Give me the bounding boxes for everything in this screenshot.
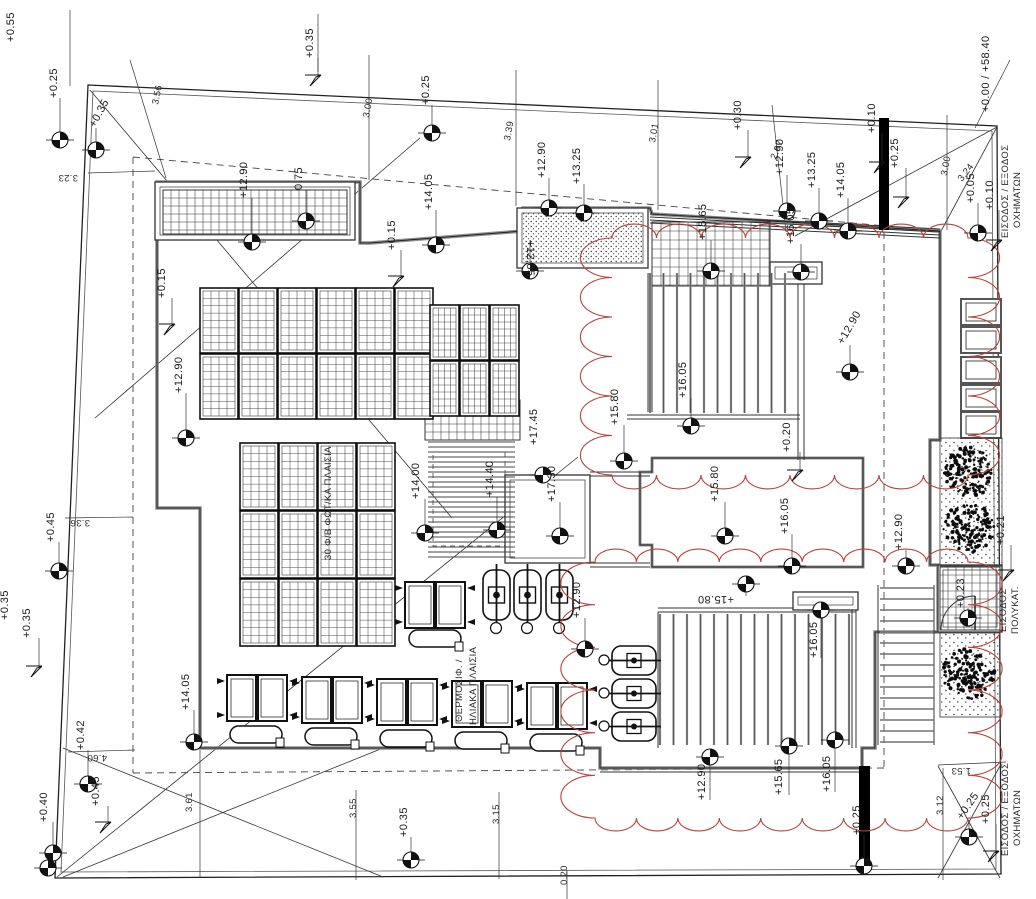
tree-foliage-dot (984, 544, 988, 548)
tree-foliage-dot (982, 462, 984, 464)
tank-fitting (426, 742, 434, 751)
elevation-label: +0.20 (781, 422, 793, 452)
elevation-label: +16.05 (785, 208, 797, 244)
tree-foliage-dot (975, 526, 978, 529)
vertical-heater (514, 564, 541, 626)
tree-foliage-dot (950, 486, 952, 488)
tree-foliage-dot (947, 518, 949, 520)
tree-foliage-dot (981, 683, 983, 685)
elevation-label: +0.10 (984, 180, 996, 210)
tree-foliage-dot (951, 530, 955, 534)
collector-divider (480, 681, 484, 727)
tree-foliage-dot (989, 472, 992, 475)
collector-pair (217, 675, 297, 721)
greek-annotation-label: ΠΟΛΥΚΑΤ. (1010, 586, 1021, 634)
tree-foliage-dot (974, 542, 976, 544)
tree-foliage-dot (947, 472, 950, 475)
tree-foliage-dot (976, 518, 979, 521)
tree-foliage-dot (980, 521, 983, 524)
tree-foliage-dot (981, 695, 983, 697)
tree-foliage-dot (989, 529, 991, 531)
pv-panel (490, 361, 519, 416)
elevation-label: +14.05 (423, 174, 435, 210)
tree-foliage-dot (986, 477, 989, 480)
tree-foliage-dot (973, 521, 975, 523)
tree-foliage-dot (953, 481, 957, 485)
tree-foliage-dot (956, 523, 959, 526)
tree-foliage-dot (960, 651, 963, 654)
tree-foliage-dot (942, 665, 946, 669)
tree-foliage-dot (953, 528, 955, 530)
tree-foliage-dot (974, 504, 977, 507)
tree-foliage-dot (973, 666, 975, 668)
tree-foliage-dot (987, 463, 990, 466)
pv-panel (240, 511, 278, 578)
tree-foliage-dot (961, 686, 963, 688)
tree-foliage-dot (947, 683, 951, 687)
elevation-label: +0.15 (156, 268, 168, 298)
heater-valve (554, 623, 565, 634)
tank-fitting (576, 746, 584, 755)
elevation-label: +13.25 (806, 152, 818, 188)
heater-valve (599, 688, 609, 698)
greek-annotation-label: ΟΧΗΜΑΤΩΝ (1012, 172, 1023, 228)
tree-foliage-dot (985, 530, 987, 532)
elevation-label: +15.80 (698, 593, 734, 605)
horizontal-heater (607, 712, 661, 741)
tree-foliage-dot (982, 518, 986, 522)
tank-fitting (455, 642, 463, 651)
elevation-label: +17.45 (528, 409, 540, 445)
tree-foliage-dot (966, 681, 969, 684)
tree-foliage-dot (978, 532, 980, 534)
tree-foliage-dot (980, 655, 982, 657)
tree-foliage-dot (967, 469, 970, 472)
tree-foliage-dot (974, 658, 977, 661)
elevation-label: +14.05 (835, 162, 847, 198)
tree-foliage-dot (982, 538, 984, 540)
pv-panel (278, 288, 316, 353)
horizontal-heater (607, 679, 661, 708)
tree-foliage-dot (962, 457, 964, 459)
tree-foliage-dot (943, 682, 946, 685)
elevation-label: +16.05 (779, 498, 791, 534)
tank-body (230, 726, 282, 743)
collector-pair (292, 677, 372, 723)
elevation-label: +0.42 (75, 720, 87, 750)
tree-foliage-dot (947, 680, 949, 682)
pv-panel (356, 288, 394, 353)
tree-foliage-dot (988, 678, 991, 681)
tree-foliage-dot (968, 459, 972, 463)
tree-foliage-dot (987, 520, 991, 524)
tree-foliage-dot (952, 520, 954, 522)
tree-foliage-dot (958, 454, 962, 458)
tree-foliage-dot (948, 669, 951, 672)
tree-foliage-dot (989, 525, 992, 528)
tree-foliage-dot (963, 655, 967, 659)
pv-panel (395, 354, 433, 419)
tree-foliage-dot (973, 529, 976, 532)
tree-foliage-dot (972, 547, 974, 549)
tree-foliage-dot (955, 459, 958, 462)
collector-pair (517, 683, 597, 729)
elevation-label: +0.45 (90, 776, 102, 806)
tree-foliage-dot (958, 692, 960, 694)
pv-panel (395, 288, 433, 353)
tree-foliage-dot (974, 448, 976, 450)
collector-divider (405, 679, 409, 725)
dimension-label: 3.15 (491, 804, 502, 824)
pv-panel (317, 288, 355, 353)
tree-foliage-dot (984, 488, 986, 490)
roof-plan-svg: +0.55+0.25+0.35+0.35+0.25+0.30+0.10+0.25… (0, 0, 1036, 899)
tree-foliage-dot (957, 685, 960, 688)
greek-annotation-label: ΕΙΣΟΔΟΣ / ΕΞΟΔΟΣ (1000, 145, 1011, 238)
elevation-label: +16.05 (677, 362, 689, 398)
tree-foliage-dot (962, 494, 965, 497)
tree-foliage-dot (961, 658, 963, 660)
tree-foliage-dot (982, 507, 986, 511)
tree-foliage-dot (971, 683, 974, 686)
tree-foliage-dot (968, 518, 970, 520)
tree-foliage-dot (953, 670, 955, 672)
tree-foliage-dot (983, 513, 985, 515)
tank-body (380, 730, 432, 747)
tree-foliage-dot (981, 485, 984, 488)
pv-panel (357, 511, 395, 578)
tree-foliage-dot (972, 662, 975, 665)
tree-foliage-dot (979, 462, 982, 465)
elevation-label: +0.35 (304, 28, 316, 58)
elevation-label: +15.80 (609, 389, 621, 425)
pv-panel (200, 354, 238, 419)
tree-foliage-dot (977, 460, 980, 463)
tree-foliage-dot (986, 466, 988, 468)
dimension-label: 3.36 (70, 517, 90, 528)
pv-panel (357, 579, 395, 646)
tree-foliage-dot (978, 667, 981, 670)
tree-foliage-dot (969, 455, 972, 458)
elevation-label: +12.90 (696, 764, 708, 800)
tree-foliage-dot (942, 528, 944, 530)
elevation-label: +16.05 (808, 622, 820, 658)
roof-plan-drawing: +0.55+0.25+0.35+0.35+0.25+0.30+0.10+0.25… (0, 0, 1036, 899)
tree-foliage-dot (987, 484, 989, 486)
heater-valve (599, 655, 609, 665)
tree-foliage-dot (953, 456, 957, 460)
tree-foliage-dot (973, 459, 976, 462)
pv-panel (460, 305, 489, 360)
tree-foliage-dot (966, 491, 969, 494)
tree-foliage-dot (968, 697, 971, 700)
tree-foliage-dot (967, 676, 969, 678)
tree-foliage-dot (990, 676, 992, 678)
elevation-label: +15.65 (697, 204, 709, 240)
tree-foliage-dot (972, 468, 975, 471)
tree-foliage-dot (967, 511, 971, 515)
tree-foliage-dot (950, 541, 951, 542)
tree-foliage-dot (967, 661, 969, 663)
dimension-label: 0.20 (559, 865, 570, 885)
tree-foliage-dot (949, 675, 950, 676)
tank-fitting (276, 738, 284, 747)
tree-foliage-dot (979, 681, 980, 682)
pv-panel (239, 288, 277, 353)
tree-foliage-dot (957, 657, 958, 658)
tree-foliage-dot (944, 670, 947, 673)
tree-foliage-dot (974, 457, 976, 459)
tree-foliage-dot (965, 650, 969, 654)
tree-foliage-dot (951, 656, 954, 659)
dimension-label: 3.61 (184, 792, 195, 812)
tree-foliage-dot (959, 661, 961, 663)
tree-foliage-dot (970, 697, 973, 700)
tree-foliage-dot (991, 519, 994, 522)
collector-divider (255, 675, 259, 721)
tree-foliage-dot (983, 546, 985, 548)
pv-panel (240, 579, 278, 646)
pv-panel (279, 579, 317, 646)
tree-foliage-dot (969, 674, 971, 676)
tree-foliage-dot (968, 540, 971, 543)
tree-foliage-dot (966, 670, 968, 672)
tree-foliage-dot (967, 543, 970, 546)
tree-foliage-dot (976, 540, 979, 543)
pv-panel (239, 354, 277, 419)
pv-panel (279, 511, 317, 578)
tree-foliage-dot (972, 513, 974, 515)
tree-foliage-dot (973, 682, 976, 685)
heater-valve (599, 721, 609, 731)
elevation-label: +0.25 (420, 75, 432, 105)
tree-foliage-dot (965, 546, 967, 548)
tree-foliage-dot (990, 538, 992, 540)
tree-foliage-dot (963, 539, 966, 542)
tree-foliage-dot (952, 652, 956, 656)
elevation-label: +0.35 (0, 590, 11, 620)
horizontal-heater (607, 646, 661, 675)
tree-foliage-dot (954, 663, 957, 666)
tree-foliage-dot (966, 504, 968, 506)
tree-foliage-dot (969, 536, 972, 539)
greek-annotation-label: ΟΧΗΜΑΤΩΝ (1012, 790, 1023, 846)
greek-annotation-label: 30 Φ/Β ΦΩΤ/ΚΑ ΠΛΑΙΣΙΑ (323, 446, 334, 560)
elevation-label: +12.85 (524, 240, 536, 276)
tree-foliage-dot (972, 454, 973, 455)
collector-divider (330, 677, 334, 723)
tree-foliage-dot (944, 661, 946, 663)
tree-foliage-dot (969, 451, 973, 455)
tree-foliage-dot (992, 678, 995, 681)
tree-foliage-dot (957, 518, 960, 521)
tree-foliage-dot (958, 547, 960, 549)
elevation-label: +0.45 (45, 512, 57, 542)
tree-foliage-dot (961, 667, 963, 669)
elevation-label: +14.00 (410, 463, 422, 499)
elevation-label: +12.90 (893, 514, 905, 550)
tree-foliage-dot (947, 513, 950, 516)
tree-foliage-dot (963, 471, 965, 473)
tree-foliage-dot (986, 455, 988, 457)
elevation-label: +0.00 / +58.40 (980, 35, 992, 112)
box-outer (155, 182, 355, 240)
tree-foliage-dot (976, 545, 979, 548)
tree-foliage-dot (958, 447, 962, 451)
elevation-label: 0.75 (293, 167, 305, 190)
tree-foliage-dot (971, 675, 973, 677)
greek-annotation-label: ΘΕΡΜΟΣΙΦ. / (454, 659, 465, 722)
tree-foliage-dot (965, 531, 967, 533)
tree-foliage-dot (978, 539, 982, 543)
tree-foliage-dot (957, 688, 959, 690)
tree-foliage-dot (977, 469, 980, 472)
tree-foliage-dot (953, 677, 957, 681)
tree-foliage-dot (981, 491, 985, 495)
tree-foliage-dot (963, 511, 967, 515)
tree-foliage-dot (943, 472, 945, 474)
tree-foliage-dot (992, 536, 994, 538)
tree-foliage-dot (957, 470, 961, 474)
tree-foliage-dot (954, 526, 957, 529)
tree-foliage-dot (959, 489, 961, 491)
planter-boxes (961, 299, 1001, 438)
elevation-label: +15.65 (773, 759, 785, 795)
tree-foliage-dot (967, 522, 970, 525)
tree-foliage-dot (962, 534, 964, 536)
tree-foliage-dot (948, 686, 952, 690)
pv-panel (200, 288, 238, 353)
tree-foliage-dot (955, 477, 957, 479)
greek-annotation-label: ΕΙΣΟΔΟΣ (998, 588, 1009, 632)
dimension-label: 3.55 (348, 798, 359, 818)
tank-body (455, 732, 507, 749)
tree-foliage-dot (969, 681, 971, 683)
elevation-label: +12.90 (173, 357, 185, 393)
tree-foliage-dot (985, 483, 987, 485)
tree-foliage-dot (977, 674, 979, 676)
greek-annotation-label: ΕΙΣΟΔΟΣ / ΕΞΟΔΟΣ (1000, 763, 1011, 856)
dimension-label: 4.60 (87, 752, 107, 763)
tree-foliage-dot (972, 486, 975, 489)
tree-foliage-dot (960, 535, 962, 537)
elevation-label: +0.10 (866, 103, 878, 133)
elevation-label: +12.90 (238, 162, 250, 198)
tree-foliage-dot (963, 506, 966, 509)
tree-foliage-dot (990, 662, 991, 663)
tree-foliage-dot (958, 668, 961, 671)
pv-panel (356, 354, 394, 419)
tree-foliage-dot (966, 449, 968, 451)
tree-foliage-dot (946, 475, 948, 477)
tree-foliage-dot (982, 451, 985, 454)
tree-foliage-dot (967, 509, 970, 512)
dimension-label: 3.23 (58, 172, 78, 183)
tree-foliage-dot (984, 675, 987, 678)
elevation-label: +14.40 (484, 461, 496, 497)
pv-array (240, 443, 395, 646)
tree-foliage-dot (945, 460, 947, 462)
elevation-label: +0.25 (48, 68, 60, 98)
elevation-label: +0.25 (980, 794, 992, 824)
tree-foliage-dot (977, 457, 978, 458)
tree-foliage-dot (990, 671, 994, 675)
tree-foliage-dot (984, 665, 986, 667)
tree-foliage-dot (968, 466, 970, 468)
tree-foliage-dot (973, 464, 975, 466)
elevation-label: +0.21 (995, 515, 1007, 545)
tree-foliage-dot (968, 525, 971, 528)
tree-foliage-dot (945, 480, 949, 484)
tree-foliage-dot (963, 452, 967, 456)
tree-foliage-dot (946, 535, 948, 537)
heater-valve (522, 623, 533, 634)
tree-foliage-dot (945, 675, 947, 677)
pv-panel (318, 579, 356, 646)
vertical-heater (483, 564, 510, 626)
tree-foliage-dot (954, 510, 956, 512)
tree-foliage-dot (961, 689, 965, 693)
elevation-label: +0.55 (5, 12, 17, 42)
elevation-label: +12.90 (571, 582, 583, 618)
tree-foliage-dot (951, 523, 954, 526)
greek-annotation-label: ΗΛΙΑΚΑ ΠΛΑΙΣΙΑ (468, 646, 479, 725)
tree-foliage-dot (946, 468, 948, 470)
tree-foliage-dot (962, 681, 966, 685)
elevation-label: +15.80 (709, 466, 721, 502)
tree-foliage-dot (974, 492, 976, 494)
dimension-label: 1.53 (951, 765, 971, 776)
tree-foliage-dot (968, 488, 970, 490)
tree-foliage-dot (978, 480, 980, 482)
tree-foliage-dot (957, 506, 959, 508)
pv-panel (490, 305, 519, 360)
elevation-label: +14.05 (180, 674, 192, 710)
elevation-label: +0.25 (889, 138, 901, 168)
tree-foliage-dot (956, 515, 959, 518)
pv-panel (278, 354, 316, 419)
pv-panel (279, 443, 317, 510)
tree-foliage-dot (963, 476, 966, 479)
pv-panel (430, 305, 459, 360)
tree-foliage-dot (945, 520, 948, 523)
tank-body (305, 728, 357, 745)
pv-array (200, 288, 433, 419)
tree-foliage-dot (986, 520, 988, 522)
tree-foliage-dot (949, 508, 953, 512)
tree-foliage-dot (969, 544, 971, 546)
tree-foliage-dot (969, 484, 971, 486)
tree-foliage-dot (945, 658, 947, 660)
tree-foliage-dot (986, 517, 989, 520)
tree-foliage-dot (958, 677, 961, 680)
tree-foliage-dot (953, 542, 955, 544)
elevation-label: +0.30 (732, 100, 744, 130)
dimension-label: 3.12 (935, 795, 946, 815)
tree-foliage-dot (978, 451, 981, 454)
tree-foliage-dot (956, 463, 959, 466)
tree-foliage-dot (961, 674, 963, 676)
tree-foliage-dot (965, 659, 967, 661)
tree-foliage-dot (979, 528, 982, 531)
tank-body (409, 630, 461, 647)
elevation-label: +16.05 (821, 756, 833, 792)
collector-pair (367, 679, 447, 725)
tree-foliage-dot (952, 464, 955, 467)
pv-panel (317, 354, 355, 419)
tree-foliage-dot (973, 483, 976, 486)
tree-foliage-dot (981, 677, 984, 680)
